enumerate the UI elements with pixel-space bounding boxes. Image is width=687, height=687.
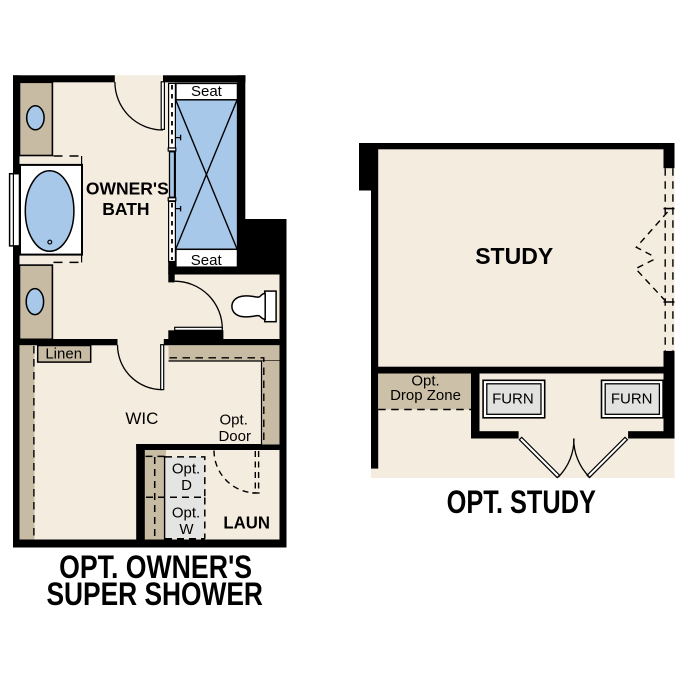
svg-text:W: W — [179, 521, 194, 538]
svg-text:Opt.: Opt. — [220, 411, 248, 428]
svg-text:D: D — [181, 477, 192, 494]
svg-text:Opt.: Opt. — [172, 461, 200, 478]
svg-text:SUPER SHOWER: SUPER SHOWER — [46, 576, 263, 612]
svg-text:Opt.: Opt. — [172, 505, 200, 522]
svg-text:Door: Door — [218, 428, 251, 445]
svg-text:FURN: FURN — [492, 390, 534, 407]
svg-text:BATH: BATH — [102, 199, 149, 219]
svg-text:Linen: Linen — [45, 346, 82, 363]
svg-text:OWNER'S: OWNER'S — [86, 179, 169, 199]
svg-text:Drop Zone: Drop Zone — [390, 387, 461, 404]
svg-text:FURN: FURN — [611, 390, 653, 407]
svg-text:Seat: Seat — [191, 83, 223, 100]
svg-text:Seat: Seat — [191, 252, 223, 269]
svg-text:WIC: WIC — [125, 409, 158, 428]
svg-text:OPT. STUDY: OPT. STUDY — [447, 484, 596, 520]
svg-text:LAUN: LAUN — [223, 512, 270, 532]
svg-text:STUDY: STUDY — [475, 243, 553, 269]
